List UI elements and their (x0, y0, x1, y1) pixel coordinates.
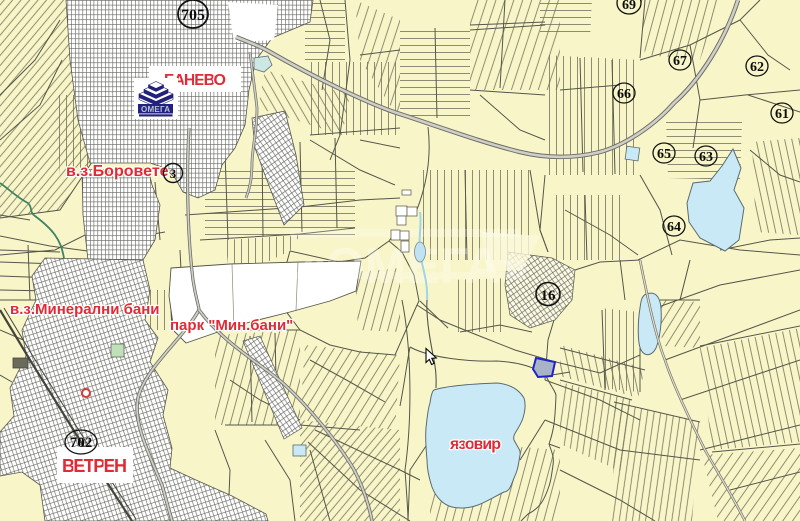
svg-text:67: 67 (673, 54, 687, 69)
svg-text:16: 16 (541, 288, 557, 304)
svg-text:702: 702 (70, 435, 93, 451)
svg-text:69: 69 (622, 0, 636, 13)
svg-text:«ОМЕГА»: «ОМЕГА» (298, 238, 529, 294)
svg-text:705: 705 (181, 7, 205, 24)
svg-text:в.з.Минерални бани: в.з.Минерални бани (10, 301, 160, 318)
svg-text:63: 63 (699, 150, 713, 165)
svg-text:парк "Мин.бани": парк "Мин.бани" (170, 317, 293, 334)
svg-text:в.з.Боровете: в.з.Боровете (66, 163, 169, 180)
svg-text:61: 61 (775, 107, 789, 122)
svg-text:64: 64 (667, 220, 681, 235)
svg-text:язовир: язовир (449, 436, 501, 453)
svg-text:ОМЕГА: ОМЕГА (141, 105, 170, 114)
svg-text:62: 62 (750, 60, 764, 75)
svg-text:66: 66 (617, 87, 631, 102)
svg-text:ВЕТРЕН: ВЕТРЕН (62, 456, 127, 476)
svg-text:65: 65 (657, 147, 671, 162)
svg-text:3: 3 (170, 166, 177, 181)
